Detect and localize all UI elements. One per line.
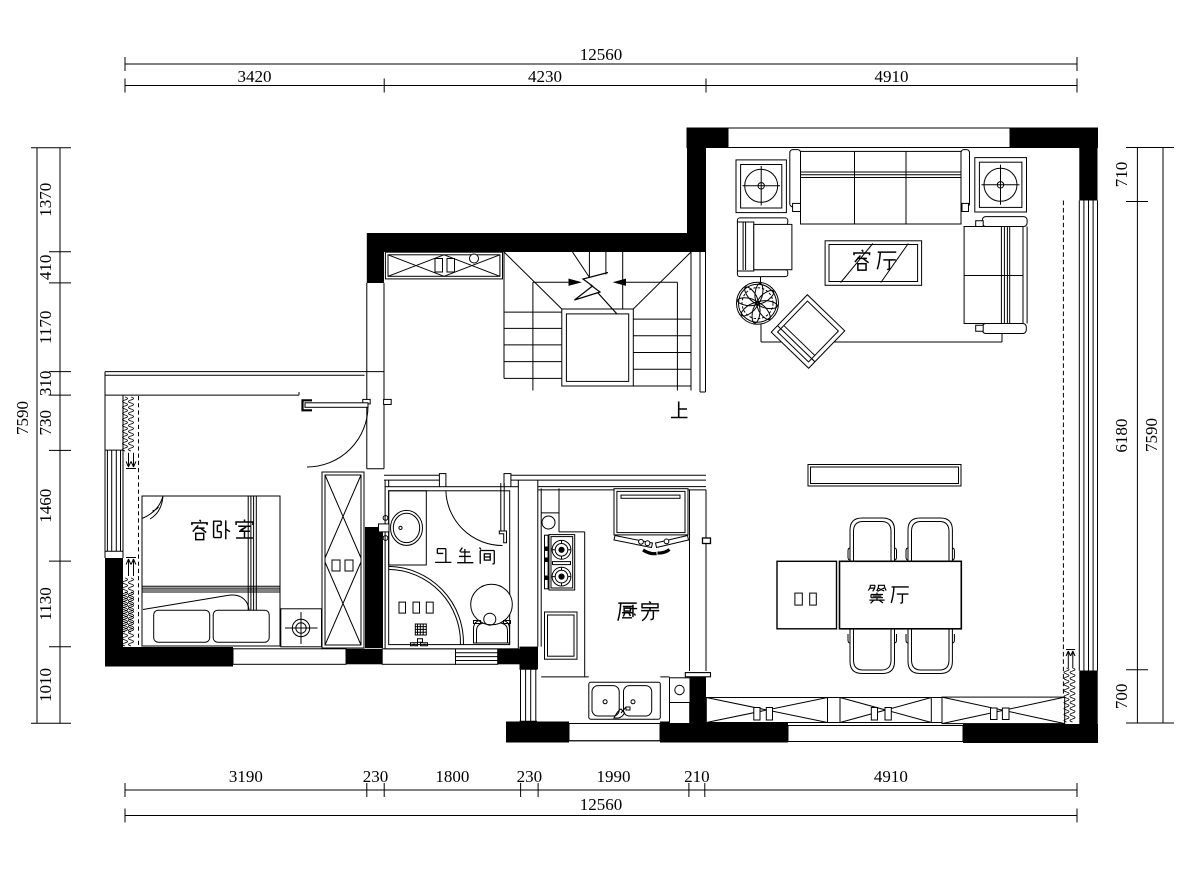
svg-text:3190: 3190 [229, 767, 263, 786]
svg-text:7590: 7590 [1142, 418, 1161, 452]
svg-text:1370: 1370 [36, 183, 55, 217]
svg-text:1130: 1130 [36, 587, 55, 620]
svg-text:1460: 1460 [36, 489, 55, 523]
svg-text:4230: 4230 [528, 67, 562, 86]
svg-text:730: 730 [36, 410, 55, 436]
svg-text:230: 230 [363, 767, 389, 786]
svg-text:1800: 1800 [435, 767, 469, 786]
svg-text:12560: 12560 [580, 795, 623, 814]
svg-text:310: 310 [36, 371, 55, 397]
svg-text:1010: 1010 [36, 668, 55, 702]
svg-text:1990: 1990 [597, 767, 631, 786]
svg-text:3420: 3420 [238, 67, 272, 86]
svg-text:700: 700 [1112, 684, 1131, 710]
svg-text:410: 410 [36, 255, 55, 281]
svg-text:230: 230 [517, 767, 543, 786]
svg-text:4910: 4910 [875, 67, 909, 86]
svg-text:12560: 12560 [580, 45, 623, 64]
svg-text:6180: 6180 [1112, 419, 1131, 453]
svg-text:7590: 7590 [13, 401, 32, 435]
svg-text:4910: 4910 [874, 767, 908, 786]
svg-text:710: 710 [1112, 162, 1131, 188]
svg-text:1170: 1170 [36, 311, 55, 344]
svg-text:210: 210 [684, 767, 710, 786]
